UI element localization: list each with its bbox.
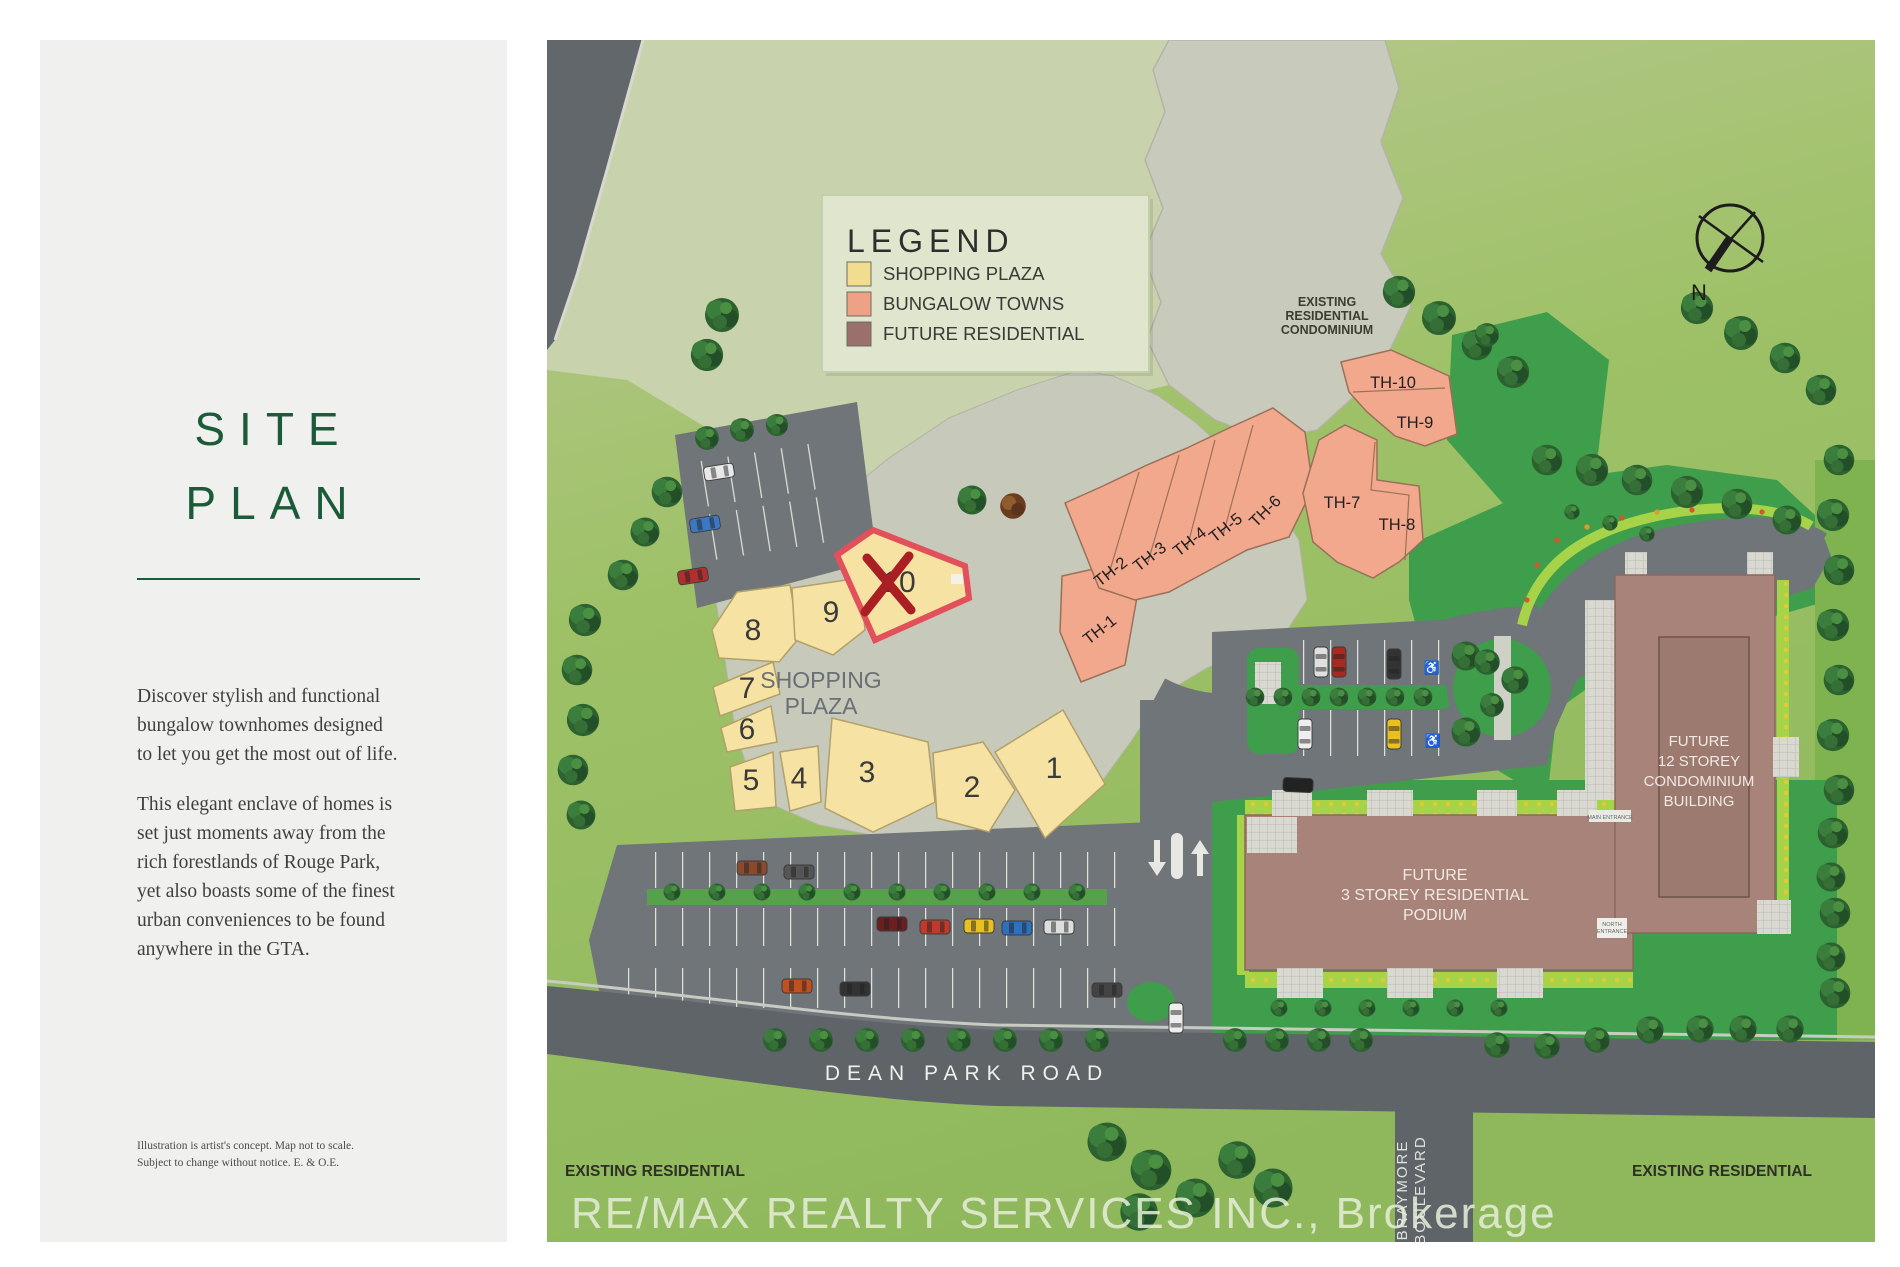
tree-icon (1330, 688, 1349, 707)
dean-park-road-label: DEAN PARK ROAD (825, 1062, 1109, 1085)
car-icon (1298, 719, 1312, 749)
site-plan-map: ♿ ♿ 10 1 2 3 4 5 6 7 8 9 TH-1 TH-2 TH-3 … (547, 40, 1875, 1242)
tree-icon (709, 884, 726, 901)
car-icon (1002, 921, 1032, 935)
car-icon (964, 919, 994, 933)
disclaimer-line1: Illustration is artist's concept. Map no… (137, 1138, 354, 1155)
tree-icon (1824, 665, 1855, 696)
future-condo-label-2: 12 STOREY (1658, 753, 1740, 770)
site-plan-illustration: ♿ ♿ 10 1 2 3 4 5 6 7 8 9 TH-1 TH-2 TH-3 … (547, 40, 1875, 1242)
tree-icon (1223, 1028, 1247, 1052)
tree-icon (934, 884, 951, 901)
car-icon (1044, 920, 1074, 934)
tree-icon (695, 426, 719, 450)
car-icon (877, 917, 907, 931)
podium-corner-pad (1247, 817, 1297, 853)
tree-icon (1358, 688, 1377, 707)
tree-icon (1576, 454, 1608, 486)
car-icon (1387, 649, 1401, 679)
tree-icon (1497, 356, 1529, 388)
tree-icon (1085, 1028, 1109, 1052)
north-entrance-label-1: NORTH (1602, 922, 1621, 928)
tree-icon (1069, 884, 1086, 901)
tree-icon (1024, 884, 1041, 901)
tree-icon (1491, 1000, 1508, 1017)
tree-icon (1274, 688, 1293, 707)
car-icon (1314, 647, 1328, 677)
legend: LEGEND SHOPPING PLAZA BUNGALOW TOWNS FUT… (822, 195, 1153, 376)
plaza-unit-9: 9 (823, 596, 840, 629)
page-title-line2: PLAN (40, 466, 507, 540)
site-plan-page: SITE PLAN Discover stylish and functiona… (0, 0, 1900, 1267)
tree-icon (1686, 1015, 1713, 1042)
th-10-label: TH-10 (1370, 374, 1416, 392)
page-title: SITE PLAN (40, 392, 507, 540)
tree-icon (1806, 375, 1837, 406)
future-podium-label-2: 3 STOREY RESIDENTIAL (1341, 887, 1529, 904)
legend-title: LEGEND (847, 223, 1015, 259)
bottom-row-1 (642, 852, 1152, 888)
description-paragraph: This elegant enclave of homes is set jus… (137, 790, 399, 964)
corner-green (1127, 982, 1175, 1022)
tree-icon (855, 1028, 879, 1052)
car-icon (1332, 647, 1346, 677)
tree-icon (1671, 476, 1703, 508)
shrub-icon (1564, 504, 1579, 519)
sold-building-notch (951, 574, 963, 584)
tree-icon (1475, 323, 1499, 347)
tree-icon (1218, 1141, 1255, 1178)
intro-paragraph: Discover stylish and functional bungalow… (137, 682, 399, 769)
existing-condo-label-3: CONDOMINIUM (1281, 323, 1373, 337)
tree-icon (558, 755, 589, 786)
accessible-parking-icon: ♿ (1425, 733, 1441, 748)
tree-icon (1302, 688, 1321, 707)
tree-icon (958, 486, 987, 515)
disclaimer-line2: Subject to change without notice. E. & O… (137, 1155, 354, 1172)
tree-icon (799, 884, 816, 901)
tree-icon (1403, 1000, 1420, 1017)
legend-swatch-bungalow (847, 292, 871, 316)
car-icon (1283, 777, 1314, 793)
tree-icon (631, 518, 660, 547)
tree-icon (1246, 688, 1265, 707)
tree-icon (754, 884, 771, 901)
tree-icon (1770, 343, 1801, 374)
tree-icon (1447, 1000, 1464, 1017)
tree-icon (1729, 1015, 1756, 1042)
tree-icon (1820, 978, 1851, 1009)
future-condo-label-1: FUTURE (1669, 733, 1730, 750)
tree-icon (1817, 499, 1849, 531)
th-9-label: TH-9 (1397, 414, 1434, 432)
car-icon (737, 861, 767, 875)
tree-icon (1817, 719, 1849, 751)
tree-icon (608, 560, 639, 591)
th-8-label: TH-8 (1379, 516, 1416, 534)
tree-icon (1480, 693, 1504, 717)
tree-icon (901, 1028, 925, 1052)
tree-icon (1039, 1028, 1063, 1052)
existing-condo-label-2: RESIDENTIAL (1285, 309, 1369, 323)
condo-stub-top-left (1625, 552, 1647, 576)
tree-icon (567, 704, 599, 736)
bottom-row-3 (617, 968, 1172, 1008)
tree-icon (1722, 489, 1753, 520)
north-entrance-box (1597, 918, 1627, 938)
tree-icon (763, 1028, 787, 1052)
tree-icon (1383, 276, 1415, 308)
legend-swatch-future (847, 322, 871, 346)
tree-icon (1349, 1028, 1373, 1052)
tree-icon (889, 884, 906, 901)
compass-north-label: N (1691, 280, 1707, 305)
tree-icon (1776, 1015, 1803, 1042)
brown-tree-icon (1000, 493, 1026, 519)
legend-label-future: FUTURE RESIDENTIAL (883, 323, 1084, 344)
condo-stub-top-right (1747, 552, 1773, 576)
tree-icon (1131, 1150, 1172, 1191)
tree-icon (1818, 818, 1849, 849)
tree-icon (1307, 1028, 1331, 1052)
future-podium-label-3: PODIUM (1403, 907, 1467, 924)
legend-swatch-shopping (847, 262, 871, 286)
existing-condo-label-1: EXISTING (1298, 295, 1356, 309)
tree-icon (705, 298, 739, 332)
brokerage-label: RE/MAX REALTY SERVICES INC., Brokerage (571, 1189, 1557, 1238)
tree-icon (1501, 666, 1528, 693)
tree-icon (1534, 1033, 1560, 1059)
tree-icon (1422, 301, 1456, 335)
main-entrance-label: MAIN ENTRANCE (1587, 815, 1633, 821)
plaza-unit-2: 2 (964, 771, 981, 804)
disclaimer: Illustration is artist's concept. Map no… (137, 1138, 354, 1172)
tree-icon (664, 884, 681, 901)
tree-icon (1773, 506, 1802, 535)
car-icon (782, 979, 812, 993)
tree-icon (1622, 465, 1653, 496)
tree-icon (1359, 1000, 1376, 1017)
tree-icon (947, 1028, 971, 1052)
tree-icon (1817, 863, 1846, 892)
tree-icon (809, 1028, 833, 1052)
tree-icon (1817, 609, 1849, 641)
future-condo-label-3: CONDOMINIUM (1644, 773, 1755, 790)
legend-label-shopping: SHOPPING PLAZA (883, 263, 1045, 284)
shrub-icon (1602, 515, 1617, 530)
car-icon (1169, 1003, 1183, 1033)
tree-icon (1271, 1000, 1288, 1017)
tree-icon (691, 339, 723, 371)
condo-stub-bottom (1757, 900, 1791, 934)
existing-residential-right-label: EXISTING RESIDENTIAL (1632, 1163, 1812, 1180)
tree-icon (1386, 688, 1405, 707)
tree-icon (1824, 445, 1855, 476)
plaza-unit-5: 5 (743, 764, 760, 797)
tree-icon (979, 884, 996, 901)
future-condo-label-4: BUILDING (1664, 793, 1735, 810)
shrub-icon (1639, 526, 1654, 541)
tree-icon (1532, 445, 1563, 476)
shopping-plaza-label-1: SHOPPING (760, 667, 881, 693)
plaza-unit-4: 4 (791, 762, 808, 795)
tree-icon (1636, 1016, 1663, 1043)
tree-icon (1265, 1028, 1289, 1052)
info-panel: SITE PLAN Discover stylish and functiona… (40, 40, 507, 1242)
tree-icon (1724, 316, 1758, 350)
accessible-parking-icon: ♿ (1424, 660, 1440, 675)
tree-icon (1087, 1122, 1126, 1161)
plaza-unit-1: 1 (1046, 752, 1063, 785)
car-icon (784, 865, 814, 879)
car-icon (1092, 983, 1122, 997)
th-7-label: TH-7 (1324, 494, 1361, 512)
divider-rule (137, 578, 420, 580)
plaza-unit-3: 3 (859, 756, 876, 789)
plaza-unit-7: 7 (739, 672, 756, 705)
car-icon (1387, 719, 1401, 749)
car-icon (840, 982, 870, 996)
condo-stub-right (1773, 737, 1799, 777)
tree-icon (1824, 775, 1855, 806)
tree-icon (1484, 1032, 1510, 1058)
tree-icon (730, 418, 754, 442)
tree-icon (569, 604, 601, 636)
tree-icon (1817, 943, 1846, 972)
tree-icon (652, 477, 683, 508)
plaza-unit-8: 8 (745, 614, 762, 647)
north-entrance-label-2: ENTRANCE (1597, 929, 1628, 935)
tree-icon (1315, 1000, 1332, 1017)
future-podium-label-1: FUTURE (1403, 867, 1468, 884)
tree-icon (844, 884, 861, 901)
tree-icon (1414, 688, 1433, 707)
tree-icon (1824, 555, 1855, 586)
car-icon (920, 920, 950, 934)
tree-icon (1452, 718, 1481, 747)
plaza-unit-6: 6 (739, 713, 756, 746)
tree-icon (993, 1028, 1017, 1052)
legend-label-bungalow: BUNGALOW TOWNS (883, 293, 1064, 314)
tree-icon (567, 801, 596, 830)
median-island (1171, 833, 1183, 879)
tree-icon (766, 414, 788, 436)
tree-icon (1584, 1027, 1610, 1053)
tree-icon (562, 655, 593, 686)
tree-icon (1474, 649, 1500, 675)
tree-icon (1820, 898, 1851, 929)
existing-residential-left-label: EXISTING RESIDENTIAL (565, 1163, 745, 1180)
shopping-plaza-label-2: PLAZA (785, 693, 859, 719)
page-title-line1: SITE (40, 392, 507, 466)
